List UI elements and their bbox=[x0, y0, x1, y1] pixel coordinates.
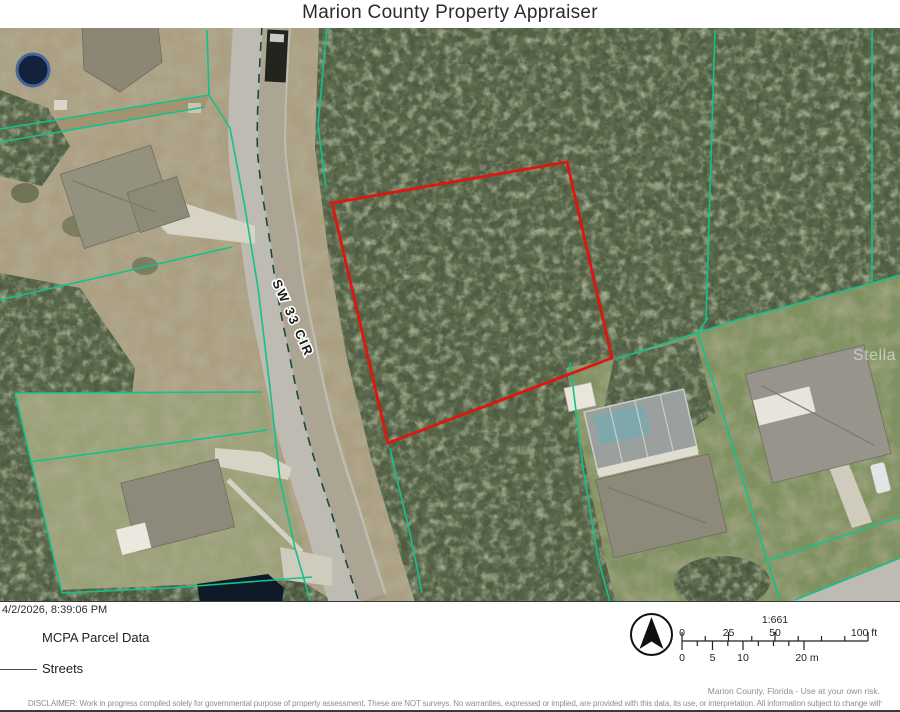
svg-text:20 m: 20 m bbox=[795, 652, 819, 664]
attribution-text: Marion County, Florida - Use at your own… bbox=[708, 686, 880, 696]
page-title: Marion County Property Appraiser bbox=[0, 0, 900, 28]
legend-item-parcel-data: MCPA Parcel Data bbox=[42, 630, 149, 645]
app-window: Marion County Property Appraiser bbox=[0, 0, 900, 712]
trampoline bbox=[17, 54, 49, 86]
street-line-symbol bbox=[0, 669, 37, 670]
svg-text:5: 5 bbox=[710, 652, 716, 664]
shed bbox=[54, 100, 67, 110]
timestamp: 4/2/2026, 8:39:06 PM bbox=[2, 604, 107, 616]
scalebar-ticks bbox=[682, 632, 868, 650]
watermark-label: Stella bbox=[853, 347, 896, 364]
svg-text:0: 0 bbox=[679, 652, 685, 664]
scale-ratio: 1:661 bbox=[762, 614, 788, 626]
legend-item-streets: Streets bbox=[42, 661, 83, 676]
map-footer: 4/2/2026, 8:39:06 PM MCPA Parcel Data St… bbox=[0, 602, 900, 712]
svg-text:10: 10 bbox=[737, 652, 749, 664]
svg-text:100 ft: 100 ft bbox=[851, 627, 877, 639]
aerial-imagery: SW 33 CIR Stella bbox=[0, 28, 900, 601]
parked-trailer bbox=[265, 29, 289, 82]
map-canvas[interactable]: SW 33 CIR Stella bbox=[0, 28, 900, 602]
disclaimer-text: DISCLAIMER: Work in progress compiled so… bbox=[28, 699, 882, 708]
scalebar: 1:661 0 25 50 100 ft 0 5 10 20 m bbox=[660, 606, 900, 668]
